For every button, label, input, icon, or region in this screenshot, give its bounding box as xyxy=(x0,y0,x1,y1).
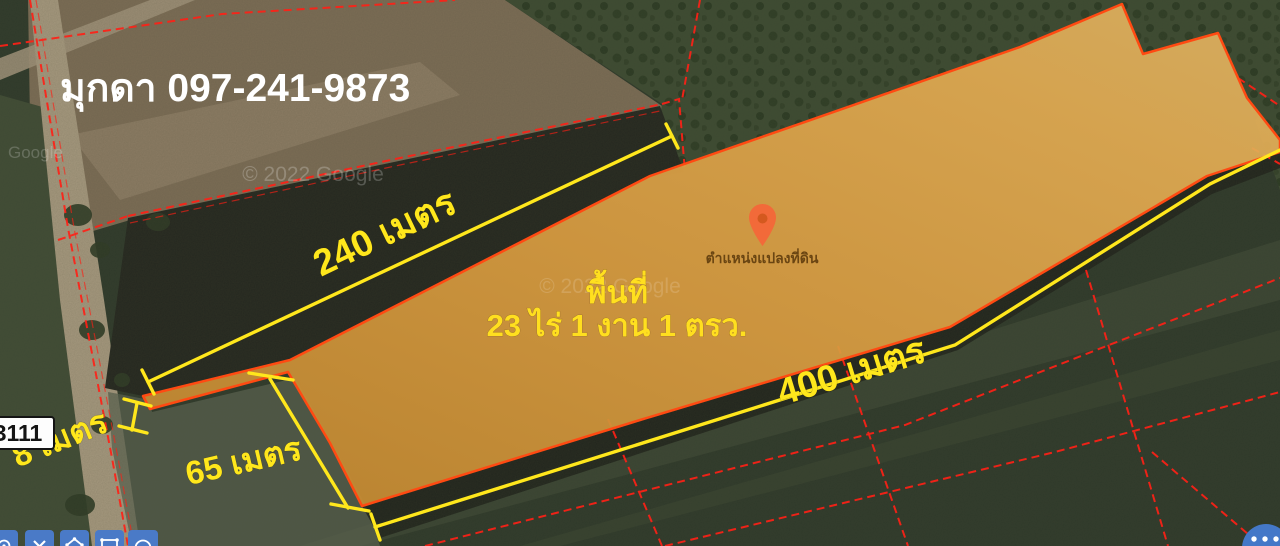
satellite-map: © 2022 Google © 2022 Google Google มุกดา… xyxy=(0,0,1280,546)
more-dots-icon xyxy=(1251,536,1278,541)
rectangle-tool-button[interactable] xyxy=(95,530,124,546)
contact-name-phone: มุกดา 097-241-9873 xyxy=(60,67,410,112)
area-title: พื้นที่ xyxy=(586,269,648,310)
route-sign-number: 3111 xyxy=(0,420,43,446)
route-sign: 3111 xyxy=(0,417,54,449)
pin-hole xyxy=(758,214,768,224)
area-value: 23 ไร่ 1 งาน 1 ตรว. xyxy=(487,307,748,343)
pin-label: ตำแหน่งแปลงที่ดิน xyxy=(706,248,819,266)
circle-tool-button[interactable] xyxy=(128,530,158,546)
google-attribution-partial: Google xyxy=(8,143,63,162)
delete-tool-button[interactable] xyxy=(25,530,54,546)
google-attribution: © 2022 Google xyxy=(242,163,384,186)
map-canvas: © 2022 Google © 2022 Google Google มุกดา… xyxy=(0,0,1280,546)
